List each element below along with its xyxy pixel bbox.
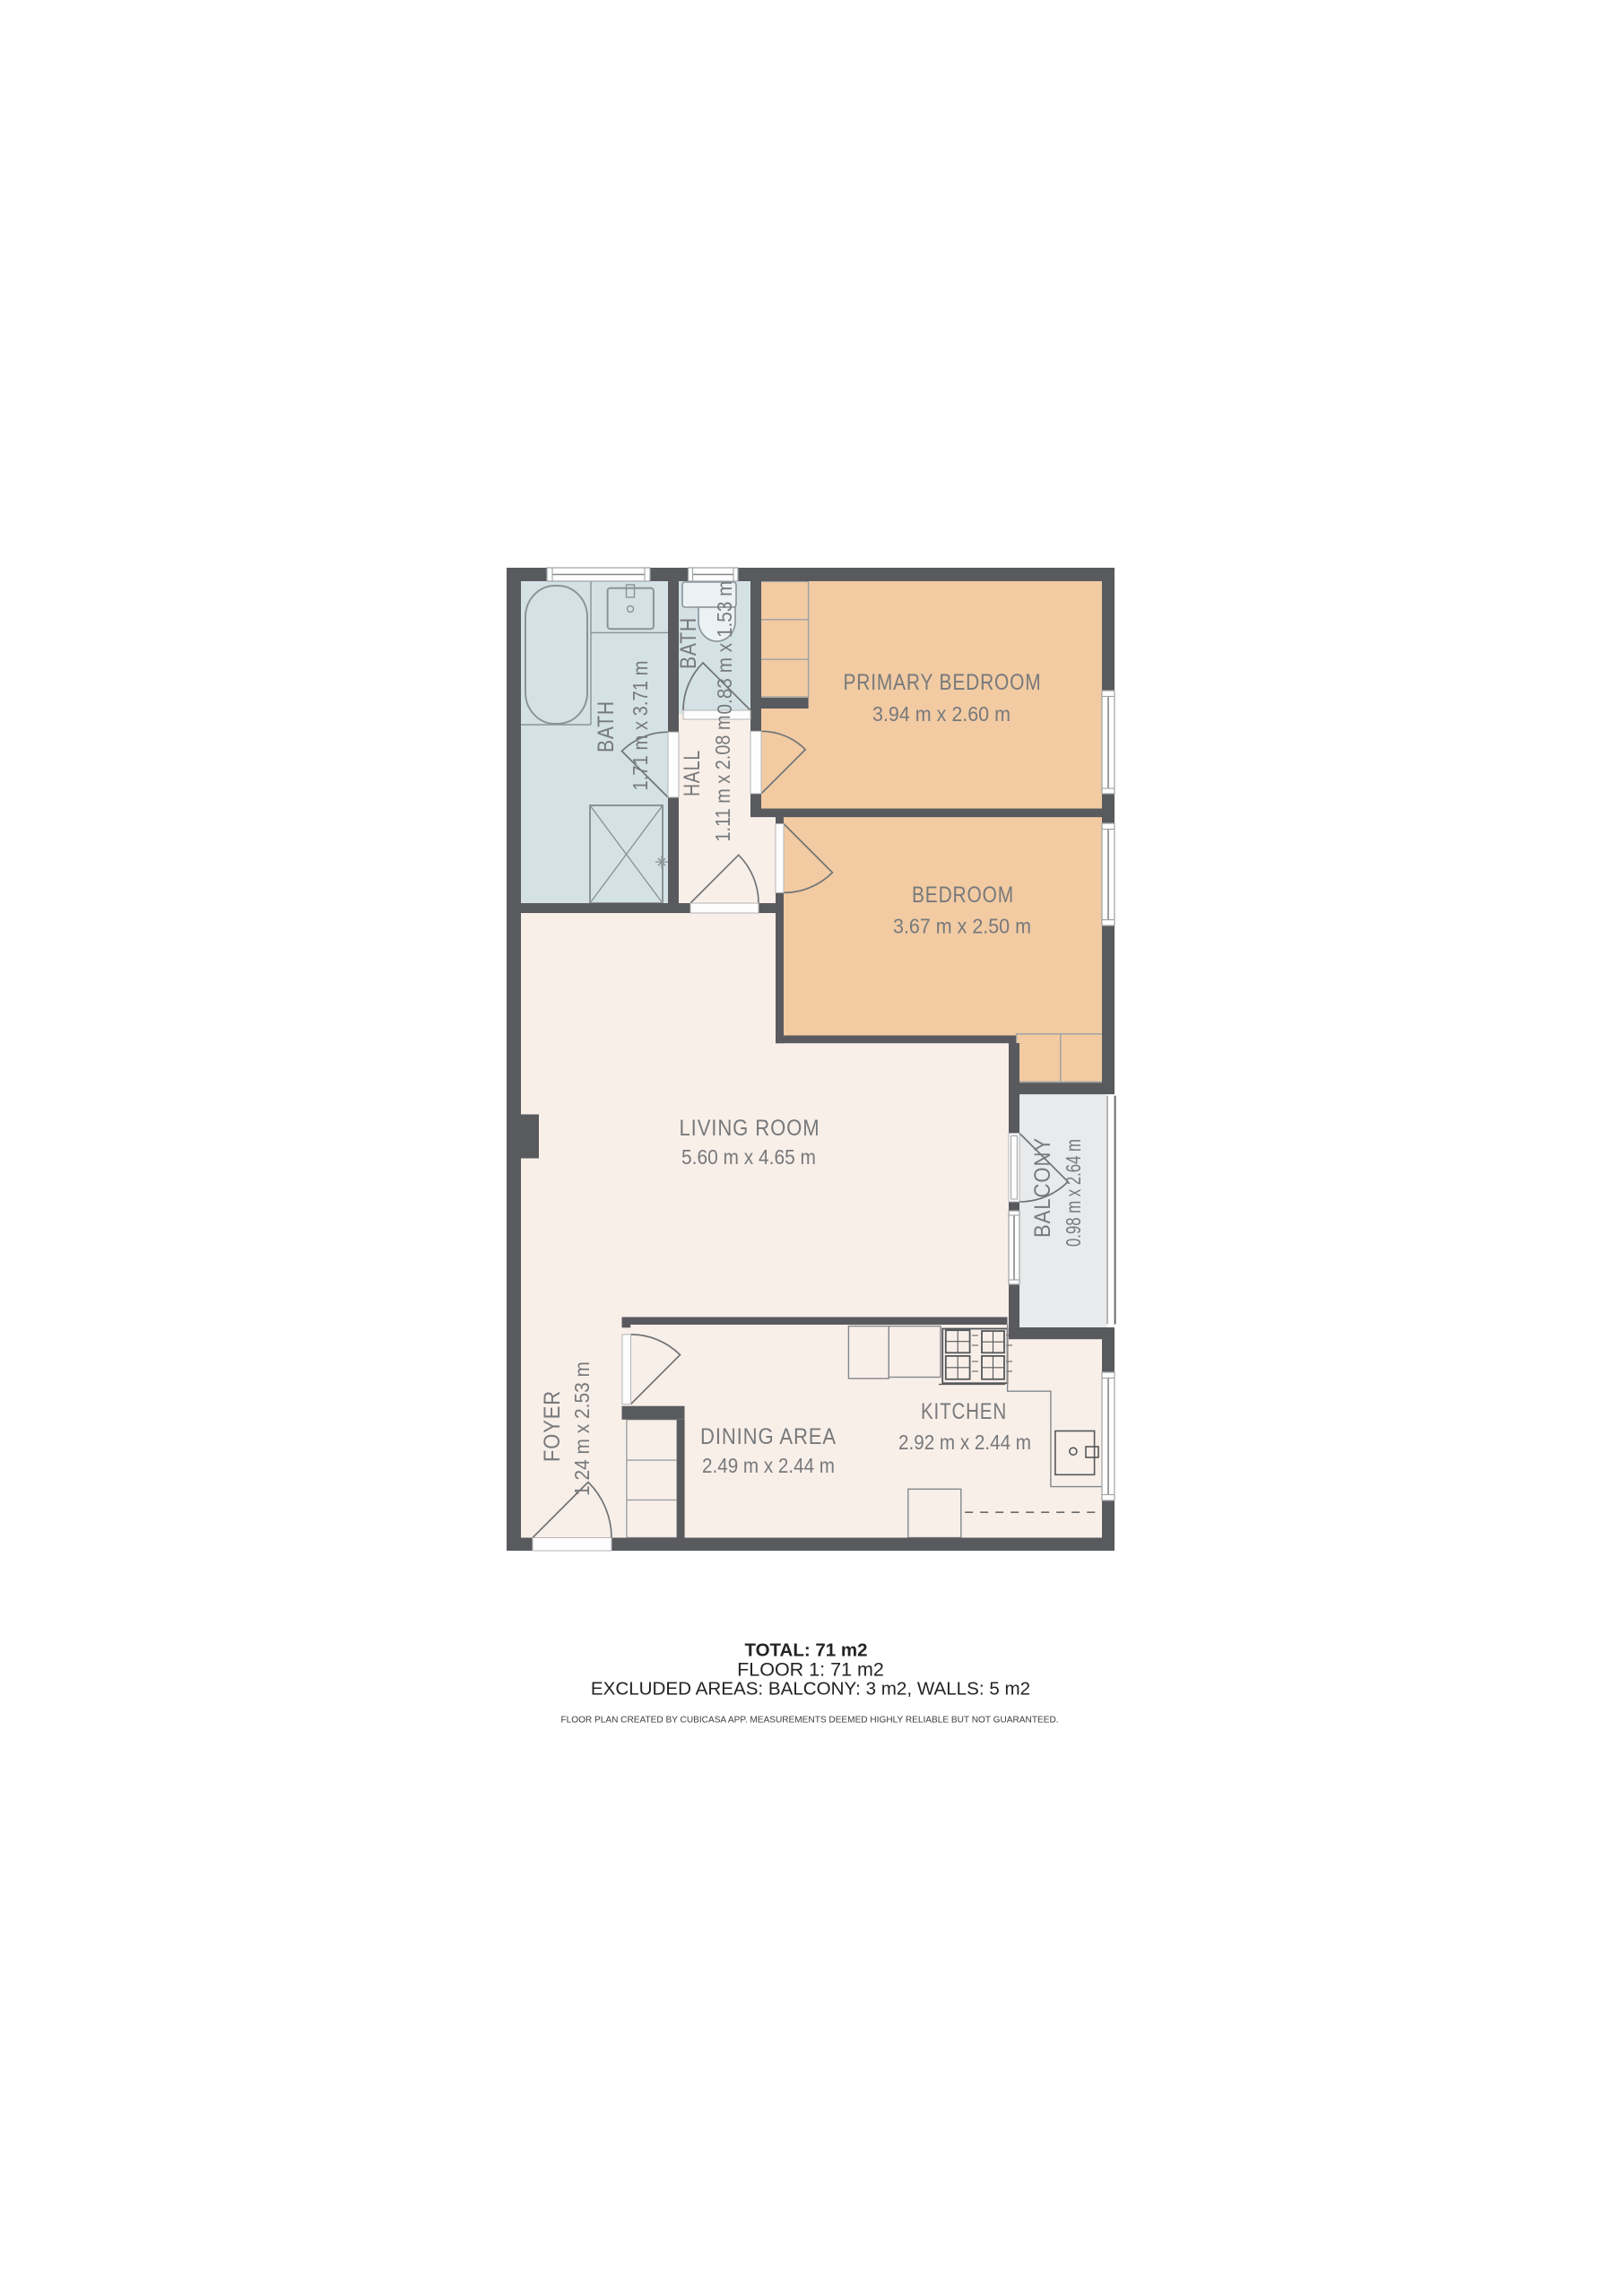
svg-text:0.83 m x 1.53 m: 0.83 m x 1.53 m xyxy=(713,581,736,715)
svg-text:3.67 m x 2.50 m: 3.67 m x 2.50 m xyxy=(893,915,1031,938)
svg-text:LIVING ROOM: LIVING ROOM xyxy=(680,1116,820,1141)
svg-text:1.71 m x 3.71 m: 1.71 m x 3.71 m xyxy=(629,661,652,791)
svg-text:FOYER: FOYER xyxy=(540,1390,565,1462)
svg-text:FLOOR PLAN CREATED BY CUBICASA: FLOOR PLAN CREATED BY CUBICASA APP. MEAS… xyxy=(560,1716,1058,1726)
svg-text:BALCONY: BALCONY xyxy=(1030,1137,1055,1238)
svg-text:5.60 m x 4.65 m: 5.60 m x 4.65 m xyxy=(681,1145,816,1169)
svg-text:0.98 m x 2.64 m: 0.98 m x 2.64 m xyxy=(1062,1139,1085,1247)
svg-text:1.24 m x 2.53 m: 1.24 m x 2.53 m xyxy=(570,1361,594,1496)
svg-text:EXCLUDED AREAS: BALCONY: 3 m2,: EXCLUDED AREAS: BALCONY: 3 m2, WALLS: 5 … xyxy=(591,1679,1030,1700)
svg-text:TOTAL: 71 m2: TOTAL: 71 m2 xyxy=(744,1640,867,1661)
svg-text:1.11 m x 2.08 m: 1.11 m x 2.08 m xyxy=(711,716,734,842)
svg-text:BEDROOM: BEDROOM xyxy=(912,883,1014,908)
svg-text:BATH: BATH xyxy=(594,700,619,752)
svg-text:PRIMARY BEDROOM: PRIMARY BEDROOM xyxy=(844,670,1042,695)
svg-text:3.94 m x 2.60 m: 3.94 m x 2.60 m xyxy=(872,702,1010,726)
svg-text:BATH: BATH xyxy=(676,617,701,669)
svg-text:2.49 m x 2.44 m: 2.49 m x 2.44 m xyxy=(702,1454,835,1477)
svg-text:DINING AREA: DINING AREA xyxy=(700,1424,837,1449)
svg-text:FLOOR 1: 71 m2: FLOOR 1: 71 m2 xyxy=(737,1659,884,1681)
svg-text:HALL: HALL xyxy=(680,750,705,796)
svg-text:KITCHEN: KITCHEN xyxy=(921,1399,1007,1424)
svg-text:2.92 m x 2.44 m: 2.92 m x 2.44 m xyxy=(898,1431,1031,1454)
